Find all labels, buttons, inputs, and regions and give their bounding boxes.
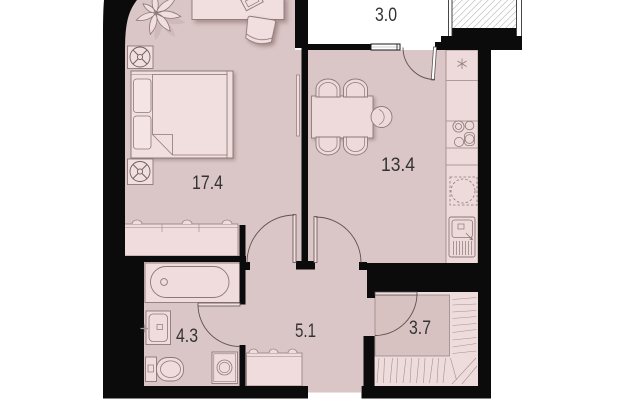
svg-text:17.4: 17.4: [192, 173, 223, 194]
svg-text:5.1: 5.1: [295, 321, 316, 342]
svg-text:4.3: 4.3: [176, 326, 198, 347]
svg-text:13.4: 13.4: [381, 155, 415, 176]
svg-text:3.7: 3.7: [409, 318, 431, 339]
svg-text:3.0: 3.0: [375, 5, 397, 26]
